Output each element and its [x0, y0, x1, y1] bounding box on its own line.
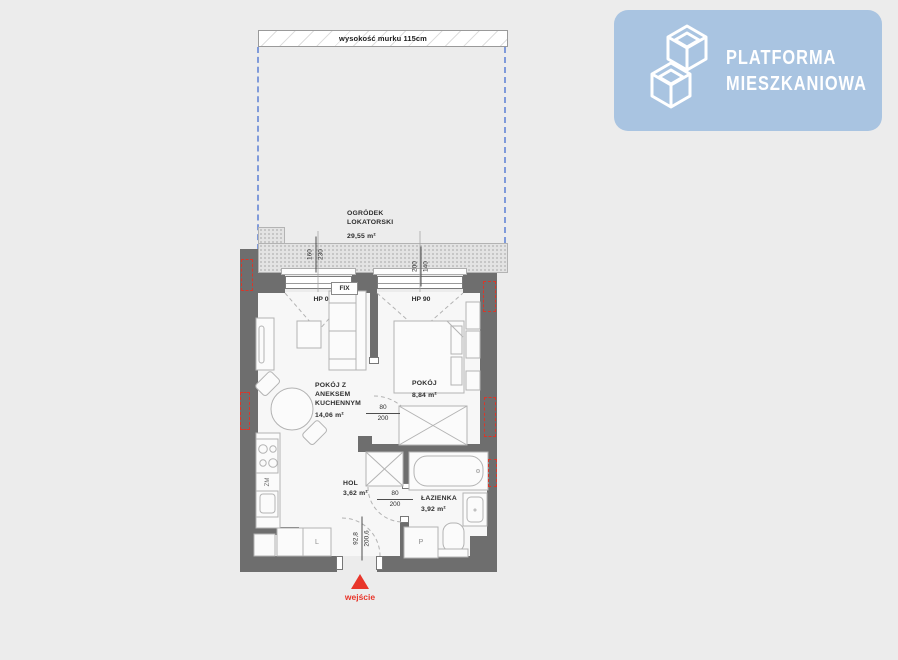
wardrobe-bedroom	[399, 406, 467, 445]
sideboard	[256, 318, 274, 370]
column-marker	[241, 259, 253, 291]
floorplan-page: wysokość murku 115cm OGRÓDEK LOKATORSKI …	[0, 0, 898, 660]
window-fix-label: FIX	[331, 282, 358, 295]
closet-crossed	[366, 452, 403, 486]
room-area-bathroom: 3,92 m²	[421, 505, 457, 514]
column-marker	[488, 459, 497, 487]
column-marker	[484, 397, 496, 437]
room-area-bedroom: 8,84 m²	[412, 391, 437, 400]
room-label-bedroom: POKÓJ 8,84 m²	[412, 379, 437, 400]
window-hp90-label: HP 90	[403, 296, 439, 303]
dim-bathroom-door: 80200	[377, 490, 413, 509]
isometric-cubes-icon	[646, 21, 712, 121]
room-label-hall: HOL 3,62 m²	[343, 479, 368, 498]
dim-bedroom-door: 80200	[366, 404, 400, 423]
toilet	[438, 523, 468, 557]
coffee-table	[297, 321, 321, 348]
shaft-box	[254, 534, 275, 556]
fridge-label: L	[303, 528, 331, 556]
logo-line2: MIESZKANIOWA	[726, 71, 867, 97]
column-marker	[240, 392, 250, 430]
room-area-hall: 3,62 m²	[343, 489, 368, 498]
room-area-living: 14,06 m²	[315, 411, 361, 420]
room-label-living: POKÓJ Z ANEKSEM KUCHENNYM 14,06 m²	[315, 381, 361, 420]
window-hp0-label: HP 0	[303, 296, 339, 303]
entrance-label: wejście	[336, 592, 384, 602]
washer-label: P	[404, 527, 438, 558]
bathtub	[409, 452, 488, 490]
dishwasher-label: ZM	[263, 472, 273, 492]
cabinet-box	[277, 528, 303, 556]
room-label-bathroom: ŁAZIENKA 3,92 m²	[421, 494, 457, 514]
dim-entry-door: 92,8200,6	[353, 517, 372, 561]
logo-line1: PLATFORMA	[726, 45, 867, 71]
nightstands	[466, 302, 480, 390]
logo-text: PLATFORMA MIESZKANIOWA	[726, 45, 867, 97]
column-marker	[483, 281, 496, 312]
dim-window2: 200140	[412, 247, 431, 287]
entrance-arrow	[351, 574, 369, 589]
washbasin	[463, 493, 487, 526]
platforma-mieszkaniowa-logo: PLATFORMA MIESZKANIOWA	[614, 10, 882, 131]
dim-window1: 160230	[307, 237, 326, 273]
